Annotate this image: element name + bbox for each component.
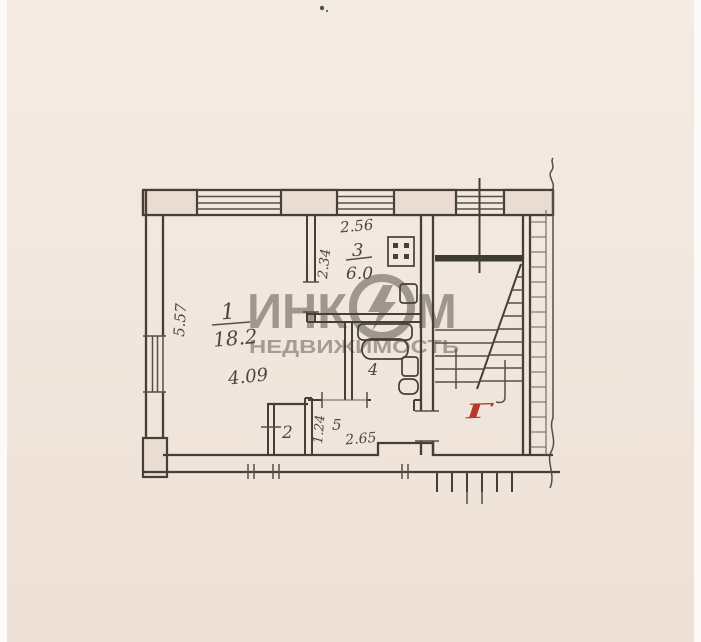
wall-pier [394, 190, 456, 215]
room1-depth-dim: 5.57 [170, 302, 190, 337]
room5-width-dim: 2.65 [344, 430, 378, 449]
room3-depth-dim: 2.34 [315, 248, 334, 281]
watermark-subtitle: НЕДВИЖИМОСТЬ [249, 337, 459, 357]
room5-number-label: 5 [332, 416, 342, 434]
paper-edge-right [694, 0, 701, 642]
wall-pier [281, 190, 337, 215]
paper-speck [320, 6, 324, 10]
room1-width-dim: 4.09 [226, 364, 269, 389]
paper-speck [326, 10, 328, 12]
watermark-brand-prefix: ИНК [247, 285, 347, 339]
floor-plan-image: ИНК М НЕДВИЖИМОСТЬ [0, 0, 701, 642]
stair-landing-edge [435, 255, 523, 262]
room2-number-label: 2 [281, 423, 293, 443]
paper-edge-left [0, 0, 7, 642]
room4-number-label: 4 [367, 360, 378, 379]
room5-depth-dim: 1.24 [311, 414, 328, 444]
red-pen-mark: Г [464, 398, 495, 423]
room1-number-label: 1 [220, 299, 236, 325]
wall-pier [143, 190, 197, 215]
room3-area-label: 6.0 [346, 264, 373, 284]
scanned-floor-plan-photo: { "document": { "kind": "apartment floor… [0, 0, 701, 642]
room3-width-dim: 2.56 [338, 216, 374, 237]
room1-area-label: 18.2 [212, 324, 258, 352]
